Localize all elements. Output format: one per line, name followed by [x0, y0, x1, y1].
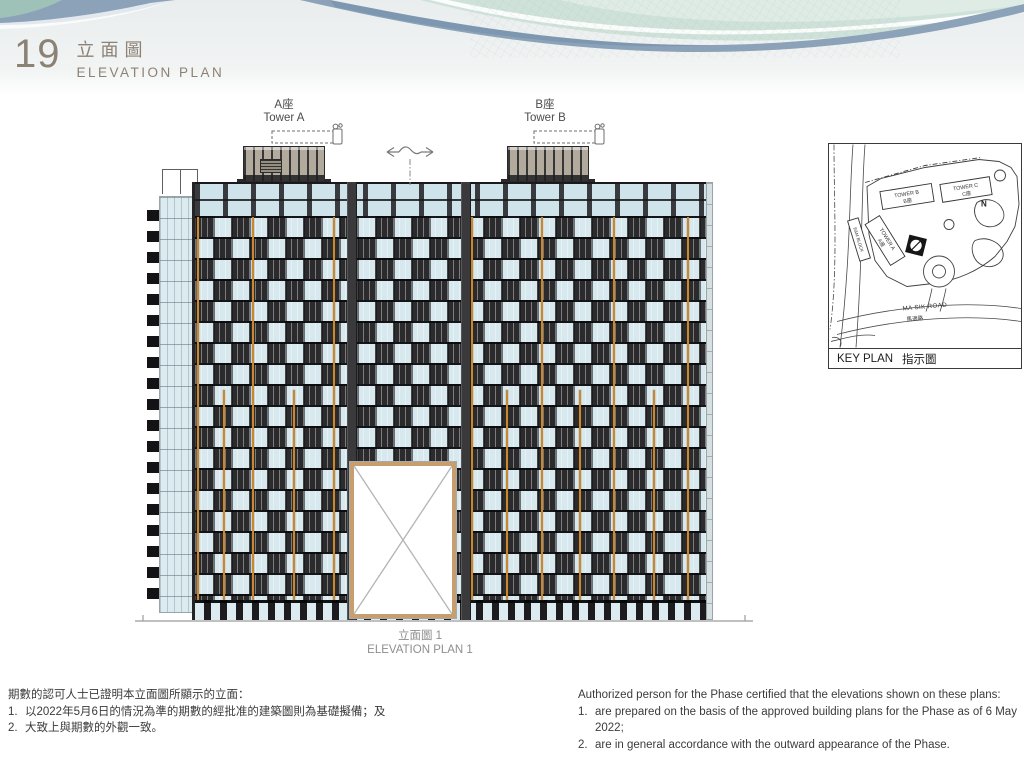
page-header: 19 立面圖 ELEVATION PLAN: [14, 34, 224, 80]
page-title-en: ELEVATION PLAN: [77, 65, 225, 80]
item-text: are in general accordance with the outwa…: [595, 737, 1022, 754]
item-text: 以2022年5月6日的情況為準的期數的經批准的建築圖則為基礎擬備；及: [25, 704, 568, 721]
page-title-zh: 立面圖: [77, 36, 225, 62]
notes-zh-item-2: 2. 大致上與期數的外觀一致。: [8, 720, 568, 737]
direction-arrows-icon: [387, 147, 433, 157]
svg-text:馬適路: 馬適路: [906, 314, 924, 323]
page-root: { "page": { "number": "19", "title_zh": …: [0, 0, 1024, 768]
page-titles: 立面圖 ELEVATION PLAN: [77, 36, 225, 80]
caption-en: ELEVATION PLAN 1: [320, 643, 520, 657]
notes-zh-item-1: 1. 以2022年5月6日的情況為準的期數的經批准的建築圖則為基礎擬備；及: [8, 704, 568, 721]
key-plan-title-bar: KEY PLAN 指示圖: [829, 348, 1021, 368]
notes-chinese: 期數的認可人士已證明本立面圖所顯示的立面： 1. 以2022年5月6日的情況為準…: [8, 687, 568, 737]
notes-en-item-2: 2. are in general accordance with the ou…: [578, 737, 1022, 754]
notes-english: Authorized person for the Phase certifie…: [578, 687, 1022, 753]
item-text: are prepared on the basis of the approve…: [595, 704, 1022, 737]
key-plan-title-en: KEY PLAN: [837, 353, 893, 365]
key-plan-title-zh: 指示圖: [902, 351, 937, 367]
notes-en-item-1: 1. are prepared on the basis of the appr…: [578, 704, 1022, 737]
keyplan-tower-b: TOWER B B座: [880, 184, 934, 210]
drawing-caption: 立面圖 1 ELEVATION PLAN 1: [320, 629, 520, 657]
drawing-annotations: [135, 95, 775, 670]
keyplan-roundabout: [924, 256, 955, 287]
keyplan-tower-a: TOWER A A座: [865, 216, 905, 266]
item-text: 大致上與期數的外觀一致。: [25, 720, 568, 737]
caption-zh: 立面圖 1: [320, 629, 520, 643]
item-number: 1.: [578, 704, 595, 737]
notes-zh-intro: 期數的認可人士已證明本立面圖所顯示的立面：: [8, 687, 568, 704]
notes-en-intro: Authorized person for the Phase certifie…: [578, 687, 1022, 704]
keyplan-tower-c: TOWER C C座: [940, 177, 992, 203]
key-plan: TOWER B B座 TOWER C C座 TOWER A A座 E&M BLO…: [828, 143, 1022, 369]
page-number: 19: [14, 34, 61, 74]
key-plan-map: TOWER B B座 TOWER C C座 TOWER A A座 E&M BLO…: [829, 144, 1021, 348]
item-number: 2.: [578, 737, 595, 754]
ground-line: [135, 615, 753, 621]
elevation-drawing: A座 Tower A B座 Tower B: [135, 95, 775, 670]
dashed-plant-outline-a: [272, 124, 342, 144]
keyplan-north-label: N: [981, 200, 987, 209]
item-number: 1.: [8, 704, 25, 721]
keyplan-compass-icon: [905, 235, 927, 257]
dashed-plant-outline-b: [534, 124, 604, 144]
svg-text:MA SIK ROAD: MA SIK ROAD: [902, 302, 947, 313]
item-number: 2.: [8, 720, 25, 737]
